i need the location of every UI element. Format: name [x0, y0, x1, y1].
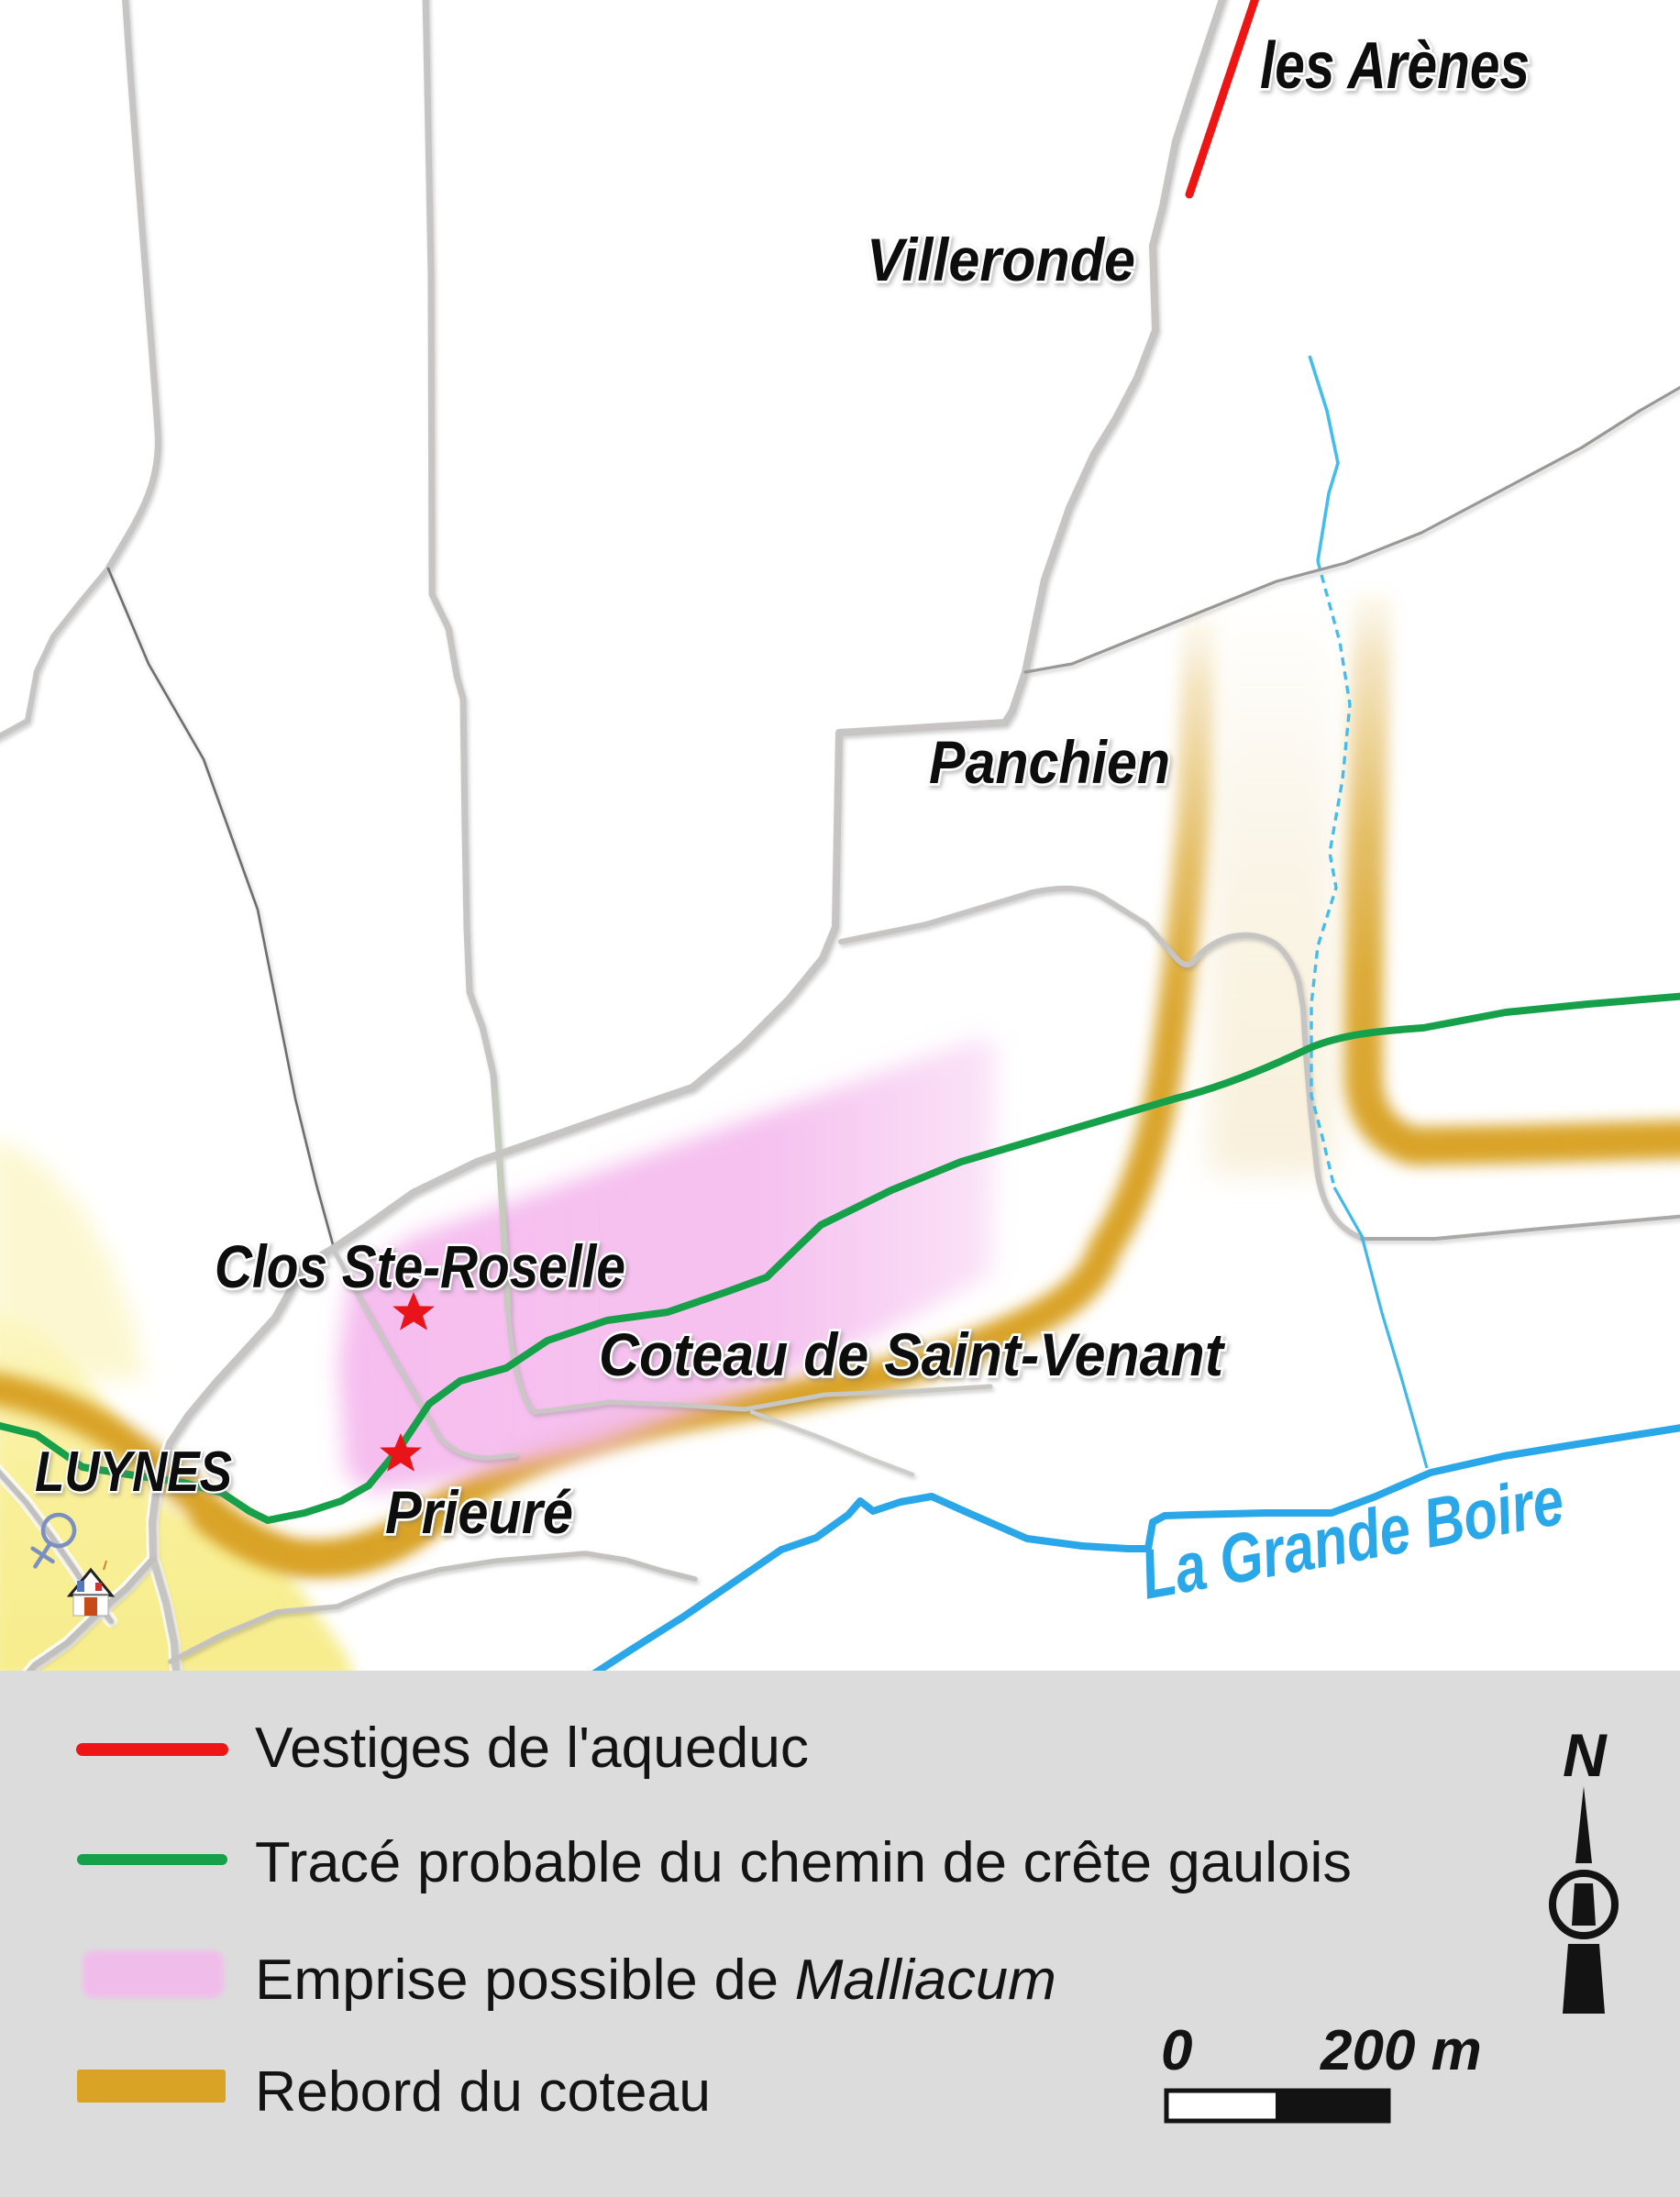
svg-text:LUYNES: LUYNES: [35, 1441, 232, 1504]
svg-text:N: N: [1563, 1721, 1608, 1789]
svg-text:Tracé probable du chemin de cr: Tracé probable du chemin de crête gauloi…: [255, 1831, 1352, 1894]
svg-text:Emprise possible de Malliacum: Emprise possible de Malliacum: [255, 1949, 1056, 2012]
svg-text:Clos Ste-Roselle: Clos Ste-Roselle: [215, 1232, 625, 1300]
svg-text:Panchien: Panchien: [929, 728, 1170, 796]
svg-text:les Arènes: les Arènes: [1260, 29, 1530, 103]
svg-text:Villeronde: Villeronde: [867, 226, 1135, 293]
svg-text:Vestiges de l'aqueduc: Vestiges de l'aqueduc: [255, 1717, 809, 1780]
svg-text:Prieuré: Prieuré: [385, 1478, 573, 1546]
svg-text:Rebord du coteau: Rebord du coteau: [255, 2060, 711, 2124]
svg-text:0: 0: [1161, 2019, 1192, 2082]
svg-text:200 m: 200 m: [1320, 2019, 1482, 2082]
svg-text:Coteau de Saint-Venant: Coteau de Saint-Venant: [599, 1320, 1226, 1388]
